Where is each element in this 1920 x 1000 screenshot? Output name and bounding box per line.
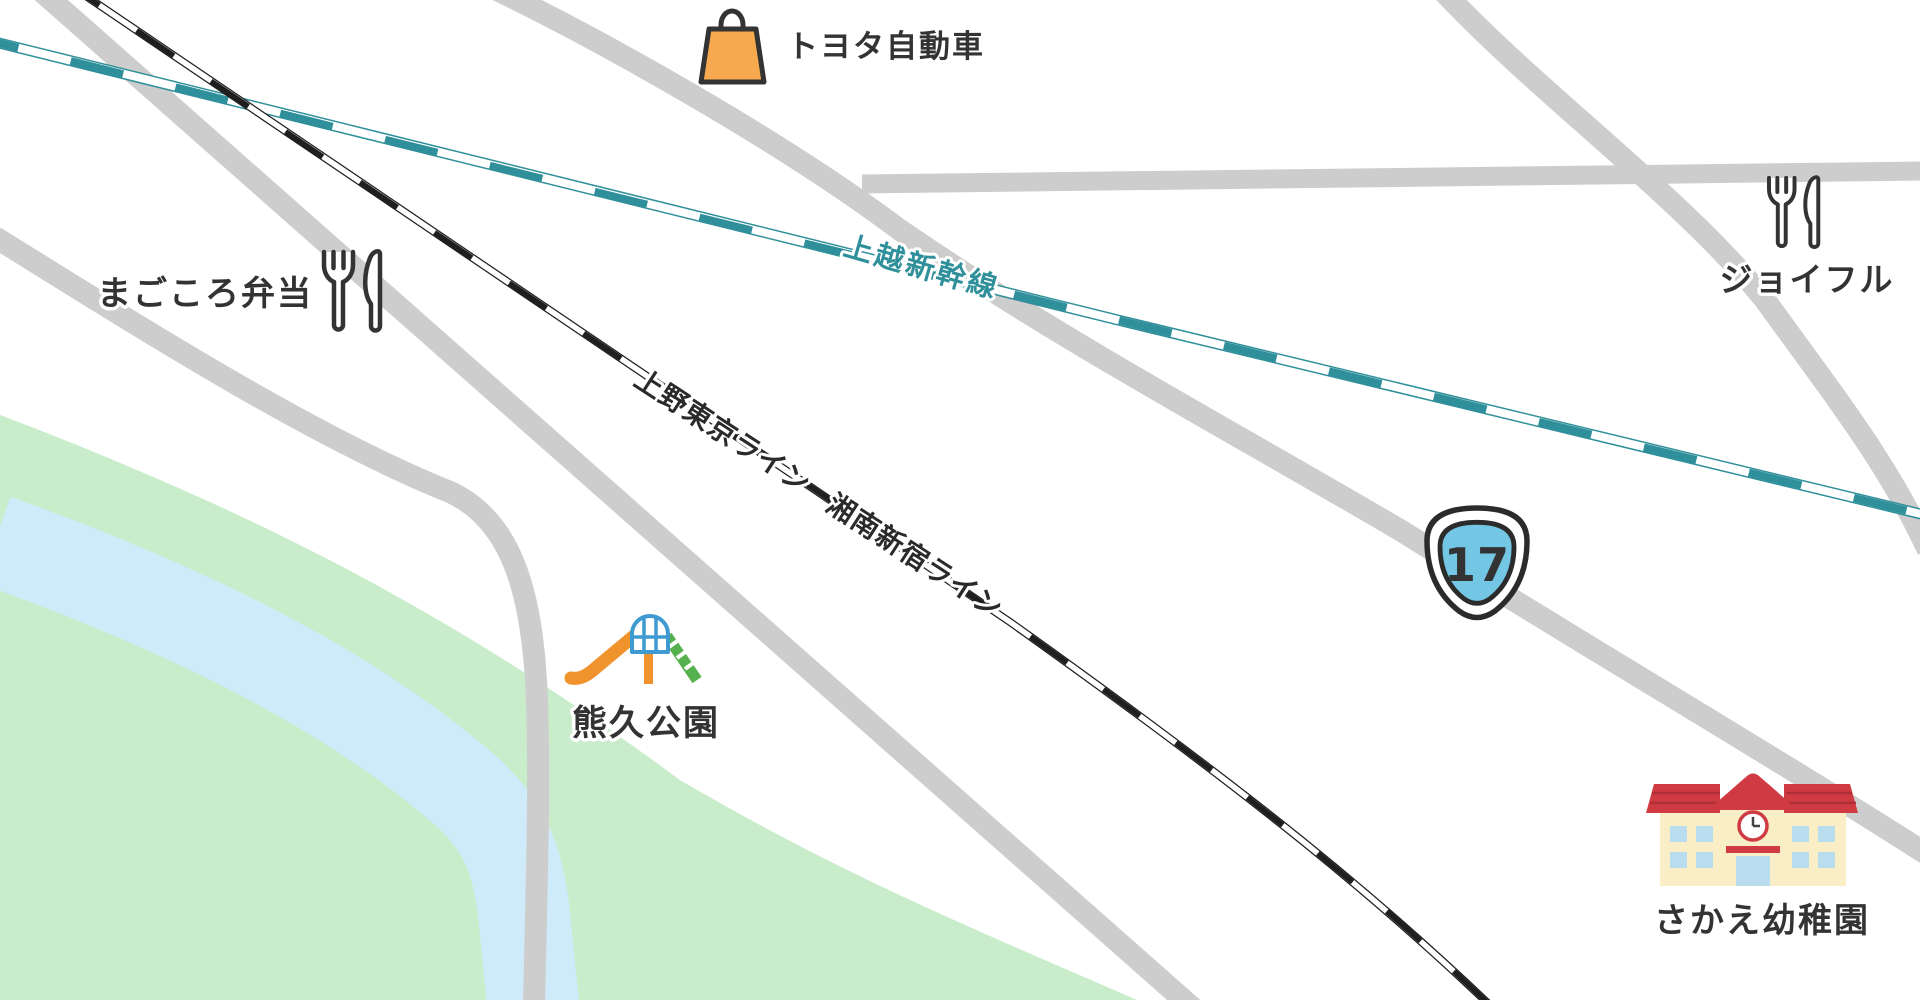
- shopping-bag-icon: [701, 11, 764, 82]
- playground-slide-icon: [571, 616, 697, 684]
- jr-line-label-shonan-shinjuku: 湘南新宿ライン: [821, 487, 1009, 625]
- school-icon: [1646, 774, 1858, 887]
- road: [862, 171, 1920, 184]
- place-toyota[interactable]: トヨタ自動車: [701, 11, 985, 82]
- map-canvas: 上越新幹線 上野東京ライン 湘南新宿ライン 17 トヨタ自動車 まごころ弁当 ジ…: [0, 0, 1920, 1000]
- place-kumahisa-park[interactable]: 熊久公園: [571, 616, 720, 744]
- fork-knife-icon: [1769, 177, 1818, 247]
- jr-line-label-ueno-tokyo: 上野東京ライン: [629, 362, 817, 500]
- place-joyful[interactable]: ジョイフル: [1720, 177, 1895, 299]
- place-label-kumahisa: 熊久公園: [572, 703, 720, 744]
- place-label-toyota: トヨタ自動車: [787, 29, 985, 65]
- place-label-magokoro: まごころ弁当: [97, 274, 313, 314]
- route-number: 17: [1444, 538, 1510, 592]
- place-label-joyful: ジョイフル: [1720, 260, 1895, 299]
- place-label-sakae: さかえ幼稚園: [1654, 901, 1870, 941]
- place-sakae-kindergarten[interactable]: さかえ幼稚園: [1646, 774, 1870, 942]
- fork-knife-icon: [324, 251, 380, 330]
- map-svg: 上越新幹線 上野東京ライン 湘南新宿ライン 17 トヨタ自動車 まごころ弁当 ジ…: [0, 0, 1920, 1000]
